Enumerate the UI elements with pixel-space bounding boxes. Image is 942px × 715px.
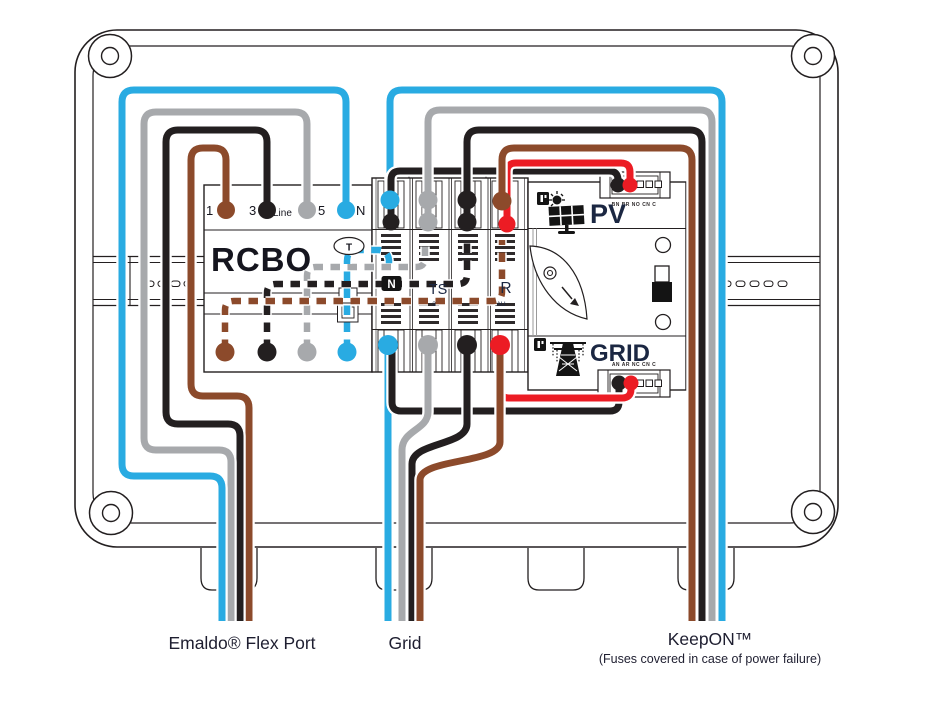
diagram-canvas: RCBO 1 3 Line 5 N	[0, 0, 942, 715]
grid-label: GRID	[590, 340, 650, 367]
pv-label: PV	[590, 199, 626, 229]
module-n-label: N	[387, 279, 395, 291]
caption-keepon-note: (Fuses covered in case of power failure)	[599, 652, 821, 666]
grid-connector-pin	[655, 380, 662, 387]
meter-toggle-top[interactable]	[655, 266, 669, 282]
module-r-label: R	[500, 280, 511, 297]
captions: Emaldo® Flex Port Grid KeepON™ (Fuses co…	[168, 629, 821, 666]
terminal-label-1: 1	[206, 203, 213, 218]
rcbo-test-button-label: T	[346, 243, 352, 254]
wiring-diagram: RCBO 1 3 Line 5 N	[0, 0, 942, 715]
pv-connector-pin	[637, 181, 644, 188]
pv-connector-pin	[646, 181, 653, 188]
caption-keepon: KeepON™	[668, 629, 753, 649]
module-3-label: 3	[432, 301, 436, 308]
module-ts-label: TS	[429, 282, 448, 298]
module-au-label: AU	[496, 301, 505, 308]
cable-gland-3	[528, 548, 584, 590]
caption-flex-port: Emaldo® Flex Port	[168, 633, 315, 653]
rcbo-title: RCBO	[211, 241, 312, 278]
keepon-meter: BN BR NO CN C AN AR NC CN C	[528, 172, 686, 397]
terminal-label-5: 5	[318, 203, 325, 218]
grid-connector-pin	[646, 380, 653, 387]
meter-toggle-switch[interactable]	[652, 282, 672, 302]
caption-grid: Grid	[388, 633, 421, 653]
terminal-label-3: 3	[249, 203, 256, 218]
pv-connector-pin	[655, 181, 662, 188]
terminal-label-n: N	[356, 203, 365, 218]
